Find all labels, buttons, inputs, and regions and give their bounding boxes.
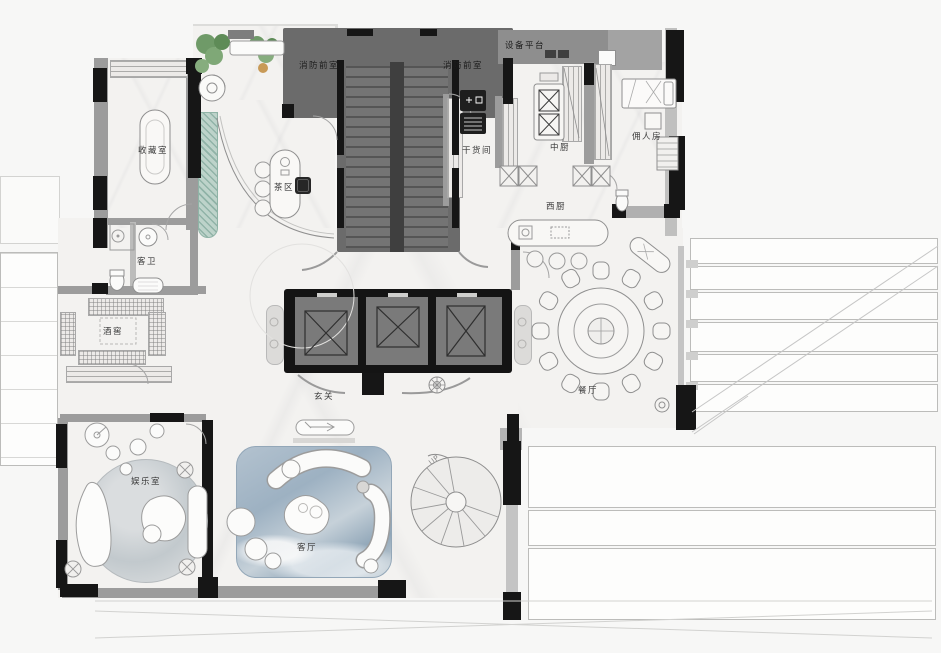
room-label-foyer: 玄关 <box>314 390 334 402</box>
wall-segment <box>56 540 67 588</box>
wall-segment <box>337 60 344 155</box>
wall-segment <box>337 168 344 228</box>
terrace-band <box>690 292 938 320</box>
wall-segment <box>495 96 502 168</box>
wall-segment <box>93 176 107 210</box>
wall-segment <box>420 29 437 36</box>
equipment-platform-slab <box>608 30 662 70</box>
window-wall <box>506 503 518 594</box>
wall-segment <box>503 441 521 505</box>
terrace-joint <box>686 290 698 298</box>
elevator-car <box>366 297 428 365</box>
wall-segment <box>503 58 513 104</box>
wall-segment <box>58 286 206 294</box>
kitchen-counter <box>502 98 518 168</box>
wall-segment <box>362 373 384 395</box>
wall-segment <box>92 283 108 294</box>
wall-segment <box>214 586 386 598</box>
room-label-equipment-platform: 设备平台 <box>505 39 545 51</box>
exterior-structure <box>0 252 58 466</box>
wall-segment <box>188 72 201 178</box>
wall-segment <box>584 63 594 85</box>
stair-flight <box>346 66 390 248</box>
wall-segment <box>130 222 136 290</box>
elevator-side-niche <box>514 305 532 365</box>
wall-segment <box>612 204 626 218</box>
equipment-unit <box>558 50 569 58</box>
wall-segment <box>198 577 218 598</box>
wall-segment <box>666 30 684 102</box>
elevator-car <box>436 297 502 365</box>
terrace-band <box>690 354 938 382</box>
wall-segment <box>669 136 685 210</box>
wall-segment <box>511 230 520 250</box>
wall-segment <box>507 414 519 442</box>
elevator-side-niche <box>266 305 284 365</box>
room-label-wine-cellar: 酒窖 <box>103 325 123 337</box>
wall-segment <box>282 104 294 118</box>
room-label-living-room: 客厅 <box>297 541 317 553</box>
wall-segment <box>452 60 459 155</box>
wall-segment <box>108 218 196 225</box>
room-label-fire-lobby-right: 消防前室 <box>443 59 483 71</box>
room-label-guest-bath: 客卫 <box>137 255 157 267</box>
room-label-collection-room: 收藏室 <box>138 144 168 156</box>
terrace-joint <box>686 320 698 328</box>
room-label-western-kitchen: 西厨 <box>546 200 566 212</box>
green-wall-screen <box>198 112 218 238</box>
wall-segment <box>664 204 680 218</box>
room-label-maid-room: 佣人房 <box>632 130 662 142</box>
wall-segment <box>60 414 206 422</box>
maid-wardrobe <box>594 64 612 160</box>
wall-segment <box>452 168 459 228</box>
closet-cabinet <box>110 60 188 78</box>
wine-rack <box>148 312 166 356</box>
wall-segment <box>503 592 521 620</box>
terrace-band <box>690 322 938 352</box>
terrace-joint <box>686 260 698 268</box>
terrace-joint <box>686 352 698 360</box>
stair-flight <box>404 66 448 248</box>
room-label-entertainment-room: 娱乐室 <box>131 475 161 487</box>
wall-segment <box>60 584 98 597</box>
wall-segment <box>676 385 696 430</box>
wall-segment <box>93 68 107 102</box>
wine-rack <box>78 350 146 365</box>
exterior-structure <box>0 176 60 244</box>
equipment-unit <box>545 50 556 58</box>
wall-segment <box>56 424 67 468</box>
room-label-dining-room: 餐厅 <box>578 384 598 396</box>
wine-rack <box>60 312 76 356</box>
terrace-band <box>690 384 938 412</box>
room-label-tea-area: 茶区 <box>274 181 294 193</box>
elevator-car <box>295 297 358 365</box>
floor-plan: 消防前室 消防前室 设备平台 干货间 中厨 西厨 佣人房 收藏室 茶区 客卫 酒… <box>0 0 941 653</box>
terrace-band <box>528 446 936 508</box>
terrace-band <box>690 238 938 264</box>
wall-segment <box>150 413 184 422</box>
room-label-dry-storage: 干货间 <box>462 144 492 156</box>
terrace-band <box>528 548 936 620</box>
wall-segment <box>93 218 107 248</box>
terrace-band <box>690 266 938 290</box>
kitchen-cabinets <box>562 66 582 142</box>
wall-segment <box>378 580 406 598</box>
stair-divider <box>390 62 404 252</box>
living-room-rug <box>236 446 392 578</box>
room-label-fire-lobby-left: 消防前室 <box>299 59 339 71</box>
wall-segment <box>190 218 198 295</box>
room-label-chinese-kitchen: 中厨 <box>550 141 570 153</box>
terrace-band <box>528 510 936 546</box>
hall-closet <box>66 366 172 383</box>
wall-segment <box>347 29 373 36</box>
